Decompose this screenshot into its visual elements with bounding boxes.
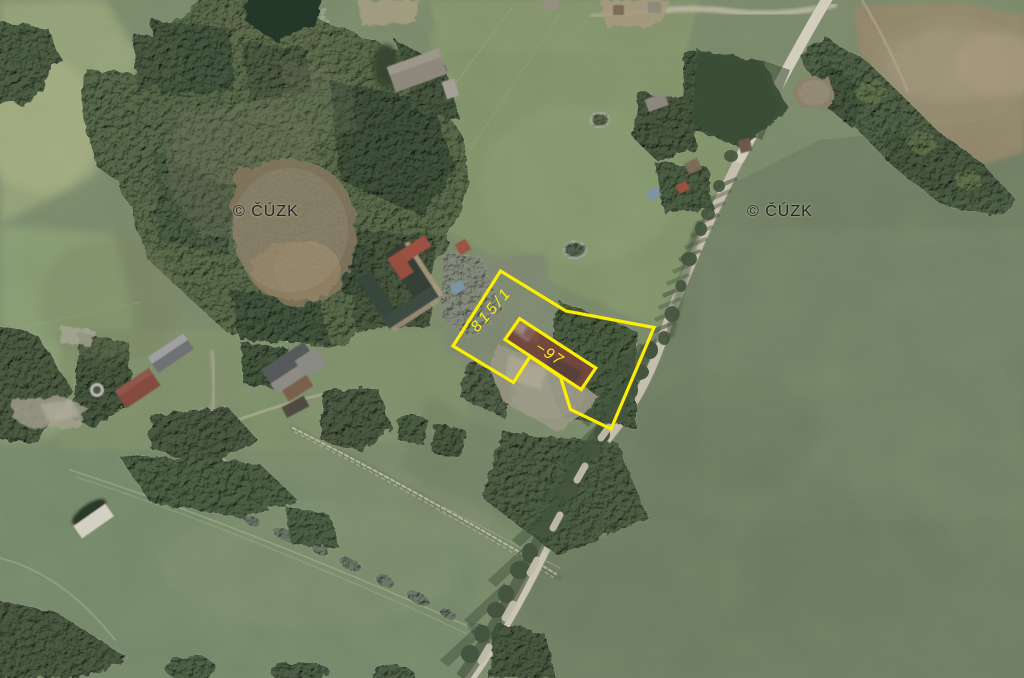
svg-text:© ČÚZK: © ČÚZK <box>233 201 299 220</box>
svg-text:© ČÚZK: © ČÚZK <box>747 201 813 220</box>
